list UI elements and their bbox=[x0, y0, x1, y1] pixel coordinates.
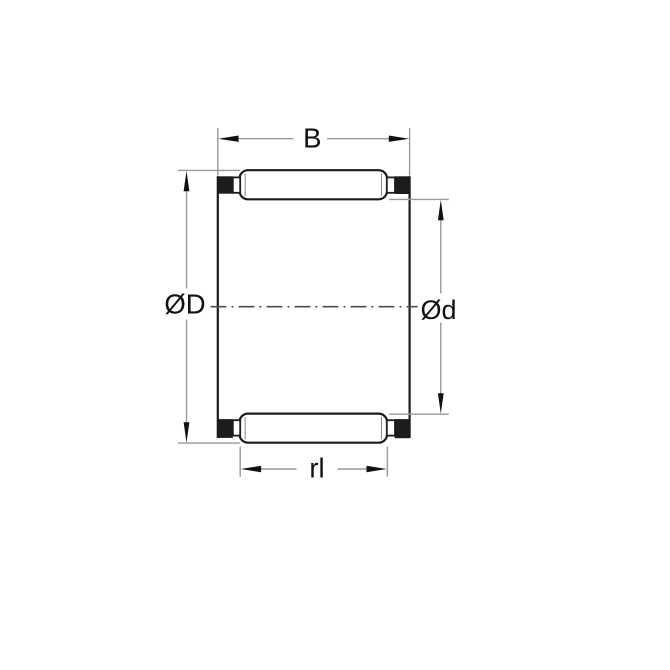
svg-text:Ød: Ød bbox=[420, 295, 456, 325]
svg-text:ØD: ØD bbox=[164, 289, 205, 320]
svg-text:rl: rl bbox=[309, 453, 324, 484]
svg-text:B: B bbox=[303, 123, 321, 154]
